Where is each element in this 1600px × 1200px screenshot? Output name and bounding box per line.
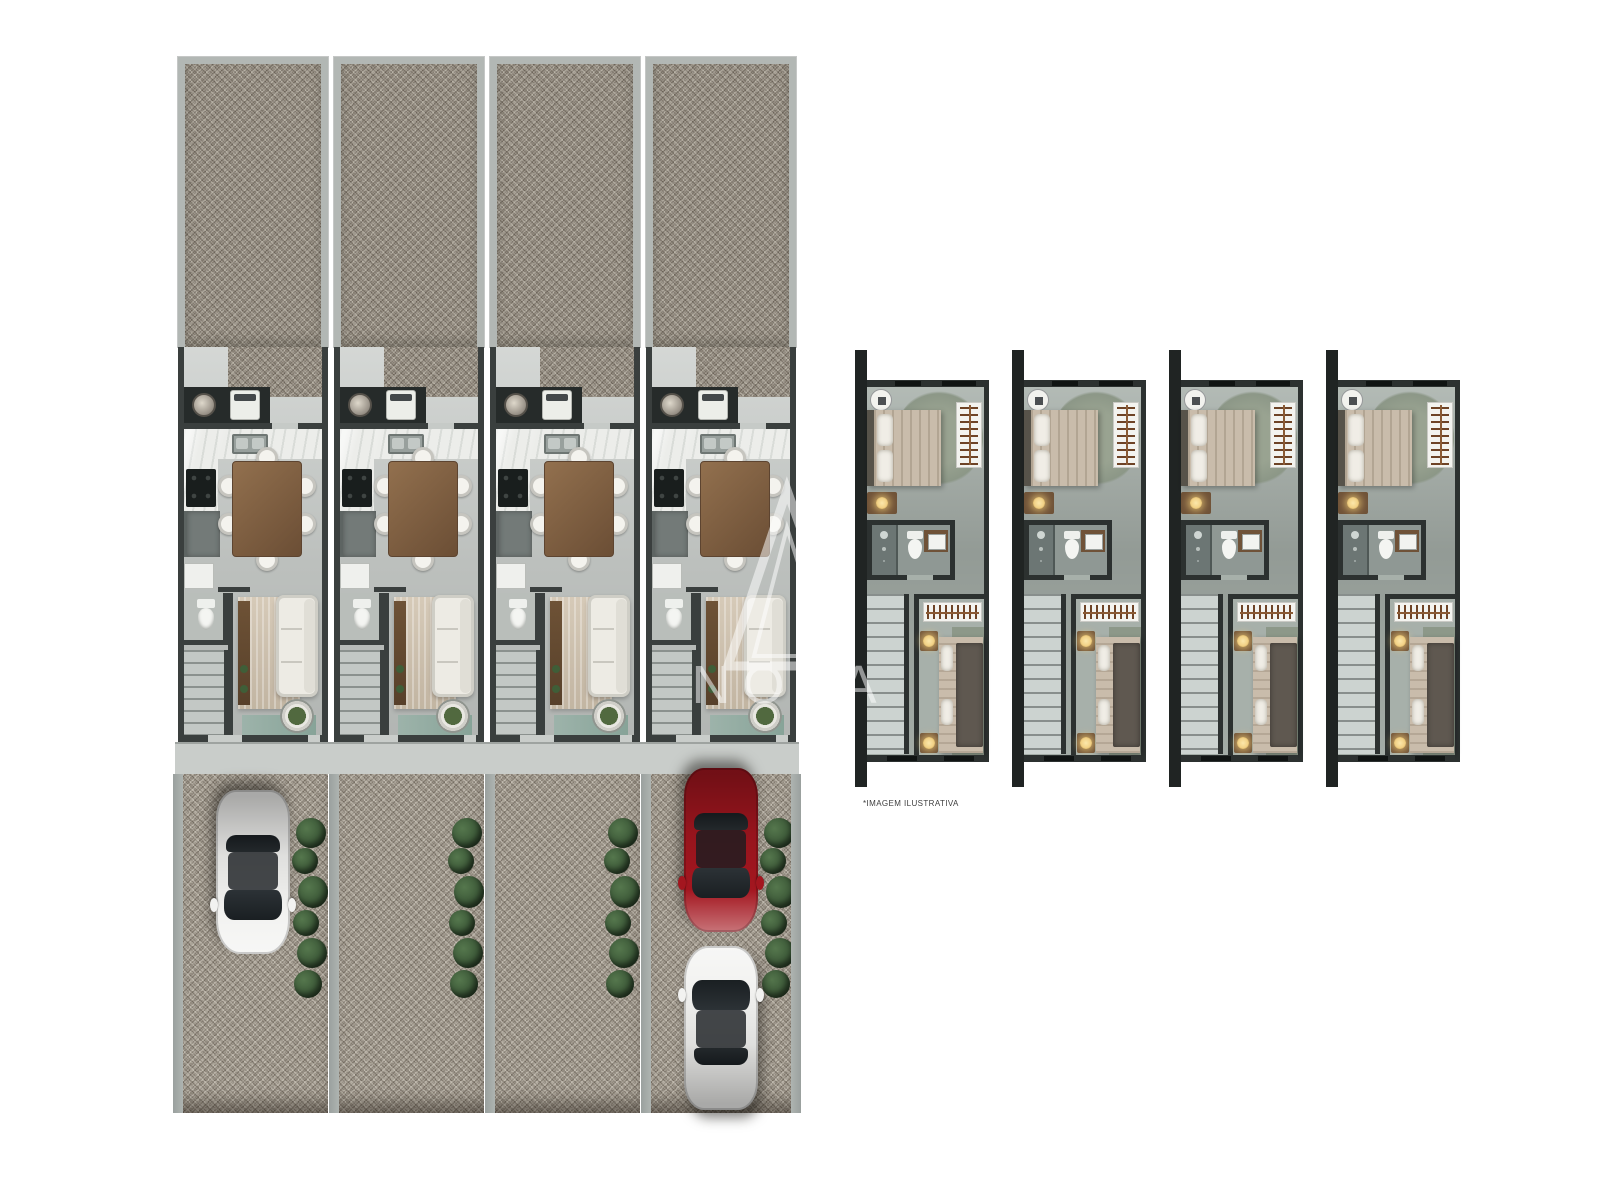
bush [452, 818, 482, 848]
bathroom [1181, 520, 1269, 580]
hedge [602, 818, 640, 1034]
clothes-rack [1394, 602, 1453, 622]
stairs [1338, 594, 1380, 754]
laundry-basin [192, 393, 216, 417]
potted-plant [280, 699, 314, 733]
pillow [1191, 414, 1207, 446]
cooktop [342, 469, 372, 507]
headboard [1181, 410, 1188, 486]
hedge [446, 818, 484, 1034]
upper-floor-group [845, 350, 1477, 795]
interior-wall [696, 593, 701, 739]
pillow [1034, 450, 1050, 482]
clothes-rack [1270, 402, 1296, 468]
upper-floor-plan [1181, 380, 1303, 762]
bedroom1-bed [1024, 410, 1098, 486]
washing-machine [542, 390, 572, 420]
upper-floor-plan [867, 380, 989, 762]
stairs [652, 650, 696, 742]
door-opening [1221, 575, 1247, 580]
clothes-rack [1080, 602, 1139, 622]
bathroom [1338, 520, 1426, 580]
upper-unit-4 [1316, 350, 1466, 795]
door-opening [740, 423, 766, 429]
nightstand-lamp [920, 733, 938, 753]
backyard-gravel [334, 57, 484, 347]
washing-machine [386, 390, 416, 420]
rear-wall [1181, 380, 1298, 387]
bush [450, 970, 478, 998]
upper-floor-plan [1024, 380, 1146, 762]
entry-door-opening [364, 735, 398, 742]
stairs [184, 650, 228, 742]
ground-floor-plan [178, 347, 328, 742]
dining-table [232, 461, 302, 557]
ground-unit-1 [178, 57, 328, 1113]
door-opening [584, 423, 610, 429]
nightstand-lamp [1391, 733, 1409, 753]
vanity-sink [924, 530, 948, 552]
bathroom [1024, 520, 1112, 580]
ground-floor-group [178, 57, 810, 1113]
bush [608, 818, 638, 848]
laundry-counter [340, 387, 426, 423]
bedroom2 [1228, 594, 1298, 762]
interior-wall [530, 587, 562, 592]
laundry-basin [504, 393, 528, 417]
sofa [276, 595, 318, 697]
bush [293, 910, 319, 936]
hedge [758, 818, 796, 1034]
nightstand-lamp [1391, 631, 1409, 651]
dining-table [544, 461, 614, 557]
bedroom1-bed [1181, 410, 1255, 486]
bush [292, 848, 318, 874]
hedge [290, 818, 328, 1034]
backyard-gravel [646, 57, 796, 347]
ground-unit-2 [334, 57, 484, 1113]
front-porch [331, 742, 487, 774]
window-opening [464, 735, 476, 742]
upper-unit-1 [845, 350, 995, 795]
blanket [1427, 643, 1454, 747]
stairs [340, 650, 384, 742]
bush [296, 818, 326, 848]
front-wall [340, 735, 478, 742]
tv-console [550, 601, 562, 705]
bedroom2 [1385, 594, 1455, 762]
rear-wall [1024, 380, 1141, 387]
side-table [1184, 389, 1206, 411]
bush [766, 876, 796, 908]
interior-wall [228, 593, 233, 739]
nightstand-lamp [920, 631, 938, 651]
toilet [1377, 531, 1395, 561]
shower [872, 525, 898, 575]
powder-room [340, 593, 384, 645]
headboard [1024, 410, 1031, 486]
dining-set [214, 447, 320, 573]
driveway [646, 774, 796, 1113]
bedroom2-bed [939, 637, 983, 753]
cooktop [186, 469, 216, 507]
pillow [877, 414, 893, 446]
clothes-rack [1237, 602, 1296, 622]
toilet [352, 599, 372, 631]
potted-plant [748, 699, 782, 733]
nightstand-lamp [1077, 733, 1095, 753]
sofa [744, 595, 786, 697]
nightstand-lamp [1338, 492, 1368, 514]
headboard [1338, 410, 1345, 486]
entry-door-opening [208, 735, 242, 742]
clothes-rack [1113, 402, 1139, 468]
toilet [664, 599, 684, 631]
shower [1343, 525, 1369, 575]
upper-unit-3 [1159, 350, 1309, 795]
white-car [216, 790, 290, 954]
bush [764, 818, 794, 848]
cooktop [498, 469, 528, 507]
bedroom2 [914, 594, 984, 762]
pillow [1191, 450, 1207, 482]
ground-floor-plan [490, 347, 640, 742]
rear-wall [867, 380, 984, 387]
laundry-counter [496, 387, 582, 423]
interior-wall [384, 593, 389, 739]
dining-table [388, 461, 458, 557]
pillow [941, 645, 953, 671]
powder-room [496, 593, 540, 645]
washing-machine [698, 390, 728, 420]
window-opening [620, 735, 632, 742]
clothes-rack [1427, 402, 1453, 468]
pillow [1098, 699, 1110, 725]
backyard-gravel [178, 57, 328, 347]
cabinet [340, 563, 370, 589]
bush [761, 910, 787, 936]
cabinet [184, 563, 214, 589]
interior-wall [540, 593, 545, 739]
pillow [1034, 414, 1050, 446]
party-wall-post [855, 350, 867, 787]
bush [294, 970, 322, 998]
interior-wall [374, 587, 406, 592]
door-opening [428, 423, 454, 429]
pillow [1412, 645, 1424, 671]
upper-floor-plan [1338, 380, 1460, 762]
laundry-counter [184, 387, 270, 423]
driveway [490, 774, 640, 1113]
side-table [870, 389, 892, 411]
sofa [432, 595, 474, 697]
nightstand-lamp [1234, 631, 1252, 651]
laundry-basin [660, 393, 684, 417]
ground-unit-4 [646, 57, 796, 1113]
pillow [1412, 699, 1424, 725]
stairs [1024, 594, 1066, 754]
bush [762, 970, 790, 998]
laundry-counter [652, 387, 738, 423]
bush [760, 848, 786, 874]
pillow [1255, 699, 1267, 725]
rear-wall [1338, 380, 1455, 387]
entry-door-opening [520, 735, 554, 742]
toilet [196, 599, 216, 631]
side-table [1341, 389, 1363, 411]
red-car [684, 768, 758, 932]
dining-set [370, 447, 476, 573]
bedroom1-bed [867, 410, 941, 486]
tv-console [238, 601, 250, 705]
backyard-gravel [490, 57, 640, 347]
driveway [334, 774, 484, 1113]
potted-plant [592, 699, 626, 733]
blanket [1270, 643, 1297, 747]
bush [610, 876, 640, 908]
pillow [1348, 450, 1364, 482]
ground-floor-plan [334, 347, 484, 742]
pillow [941, 699, 953, 725]
cabinet [496, 563, 526, 589]
clothes-rack [956, 402, 982, 468]
bush [448, 848, 474, 874]
bush [298, 876, 328, 908]
party-wall-post [1169, 350, 1181, 787]
front-wall [184, 735, 322, 742]
dining-set [526, 447, 632, 573]
front-wall [1024, 755, 1141, 762]
front-wall [652, 735, 790, 742]
cabinet [652, 563, 682, 589]
bush [605, 910, 631, 936]
stairs [1181, 594, 1223, 754]
powder-room [184, 593, 228, 645]
washing-machine [230, 390, 260, 420]
pillow [877, 450, 893, 482]
front-porch [487, 742, 643, 774]
stairs [867, 594, 909, 754]
interior-wall [218, 587, 250, 592]
entry-door-opening [676, 735, 710, 742]
vanity-sink [1395, 530, 1419, 552]
bedroom1-bed [1338, 410, 1412, 486]
front-wall [1338, 755, 1455, 762]
bush [765, 938, 795, 968]
door-opening [1378, 575, 1404, 580]
laundry-basin [348, 393, 372, 417]
ground-floor-plan [646, 347, 796, 742]
side-table [1027, 389, 1049, 411]
window-opening [308, 735, 320, 742]
toilet [508, 599, 528, 631]
interior-wall [686, 587, 718, 592]
front-wall [1181, 755, 1298, 762]
toilet [1220, 531, 1238, 561]
headboard [867, 410, 874, 486]
upper-unit-2 [1002, 350, 1152, 795]
bathroom [867, 520, 955, 580]
toilet [1063, 531, 1081, 561]
nightstand-lamp [1024, 492, 1054, 514]
floorplan-canvas: NOVA *IMAGEM ILUSTRATIVA [0, 0, 1600, 1200]
bush [454, 876, 484, 908]
front-porch [175, 742, 331, 774]
stairs [496, 650, 540, 742]
bush [453, 938, 483, 968]
potted-plant [436, 699, 470, 733]
shower [1186, 525, 1212, 575]
powder-room [652, 593, 696, 645]
bush [606, 970, 634, 998]
door-opening [907, 575, 933, 580]
door-opening [272, 423, 298, 429]
nightstand-lamp [1181, 492, 1211, 514]
window-opening [776, 735, 788, 742]
vanity-sink [1238, 530, 1262, 552]
nightstand-lamp [867, 492, 897, 514]
party-wall-post [1012, 350, 1024, 787]
tv-console [394, 601, 406, 705]
front-wall [496, 735, 634, 742]
ground-unit-3 [490, 57, 640, 1113]
shower [1029, 525, 1055, 575]
pillow [1348, 414, 1364, 446]
toilet [906, 531, 924, 561]
cooktop [654, 469, 684, 507]
party-wall-post [1326, 350, 1338, 787]
bush [297, 938, 327, 968]
bush [604, 848, 630, 874]
driveway [178, 774, 328, 1113]
bedroom2 [1071, 594, 1141, 762]
dining-table [700, 461, 770, 557]
bush [609, 938, 639, 968]
pillow [1255, 645, 1267, 671]
white-car [684, 946, 758, 1110]
bush [449, 910, 475, 936]
nightstand-lamp [1077, 631, 1095, 651]
bedroom2-bed [1253, 637, 1297, 753]
pillow [1098, 645, 1110, 671]
clothes-rack [923, 602, 982, 622]
bedroom2-bed [1410, 637, 1454, 753]
bedroom2-bed [1096, 637, 1140, 753]
front-wall [867, 755, 984, 762]
illustrative-image-caption: *IMAGEM ILUSTRATIVA [863, 799, 959, 808]
blanket [1113, 643, 1140, 747]
dining-set [682, 447, 788, 573]
nightstand-lamp [1234, 733, 1252, 753]
door-opening [1064, 575, 1090, 580]
tv-console [706, 601, 718, 705]
sofa [588, 595, 630, 697]
blanket [956, 643, 983, 747]
vanity-sink [1081, 530, 1105, 552]
